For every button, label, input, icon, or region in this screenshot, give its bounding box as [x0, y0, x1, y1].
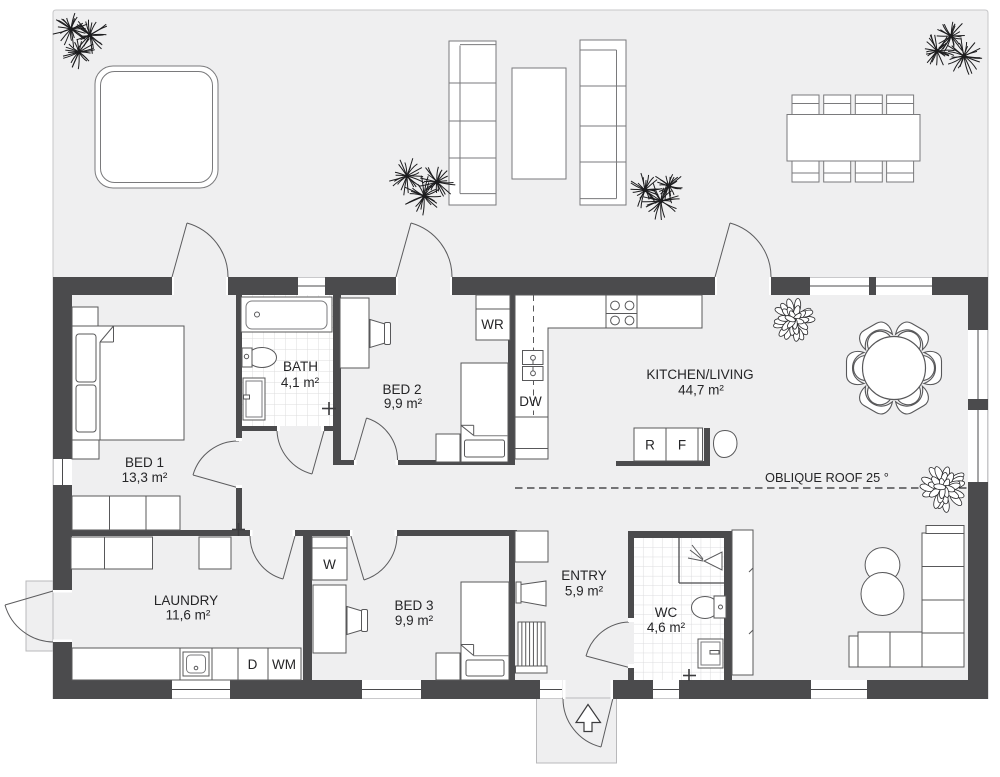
svg-text:F: F — [678, 438, 686, 453]
svg-text:W: W — [323, 557, 336, 572]
svg-text:R: R — [645, 438, 655, 453]
svg-text:44,7 m²: 44,7 m² — [678, 383, 724, 398]
svg-text:9,9 m²: 9,9 m² — [384, 396, 423, 411]
svg-text:13,3 m²: 13,3 m² — [122, 470, 168, 485]
svg-text:WC: WC — [655, 605, 678, 620]
svg-text:4,1 m²: 4,1 m² — [281, 375, 320, 390]
svg-text:KITCHEN/LIVING: KITCHEN/LIVING — [646, 367, 753, 382]
svg-text:4,6 m²: 4,6 m² — [647, 620, 686, 635]
svg-text:BATH: BATH — [283, 359, 318, 374]
svg-text:BED 3: BED 3 — [394, 598, 433, 613]
svg-text:9,9 m²: 9,9 m² — [395, 613, 434, 628]
svg-text:ENTRY: ENTRY — [561, 568, 607, 583]
svg-text:DW: DW — [519, 394, 542, 409]
svg-text:WM: WM — [272, 657, 296, 672]
svg-text:BED 1: BED 1 — [125, 455, 164, 470]
svg-text:BED 2: BED 2 — [382, 382, 421, 397]
svg-text:LAUNDRY: LAUNDRY — [154, 593, 218, 608]
svg-text:OBLIQUE ROOF 25 °: OBLIQUE ROOF 25 ° — [765, 470, 889, 485]
svg-text:5,9 m²: 5,9 m² — [565, 584, 604, 599]
svg-text:D: D — [248, 657, 258, 672]
svg-text:11,6 m²: 11,6 m² — [166, 608, 211, 623]
svg-text:WR: WR — [481, 317, 504, 332]
